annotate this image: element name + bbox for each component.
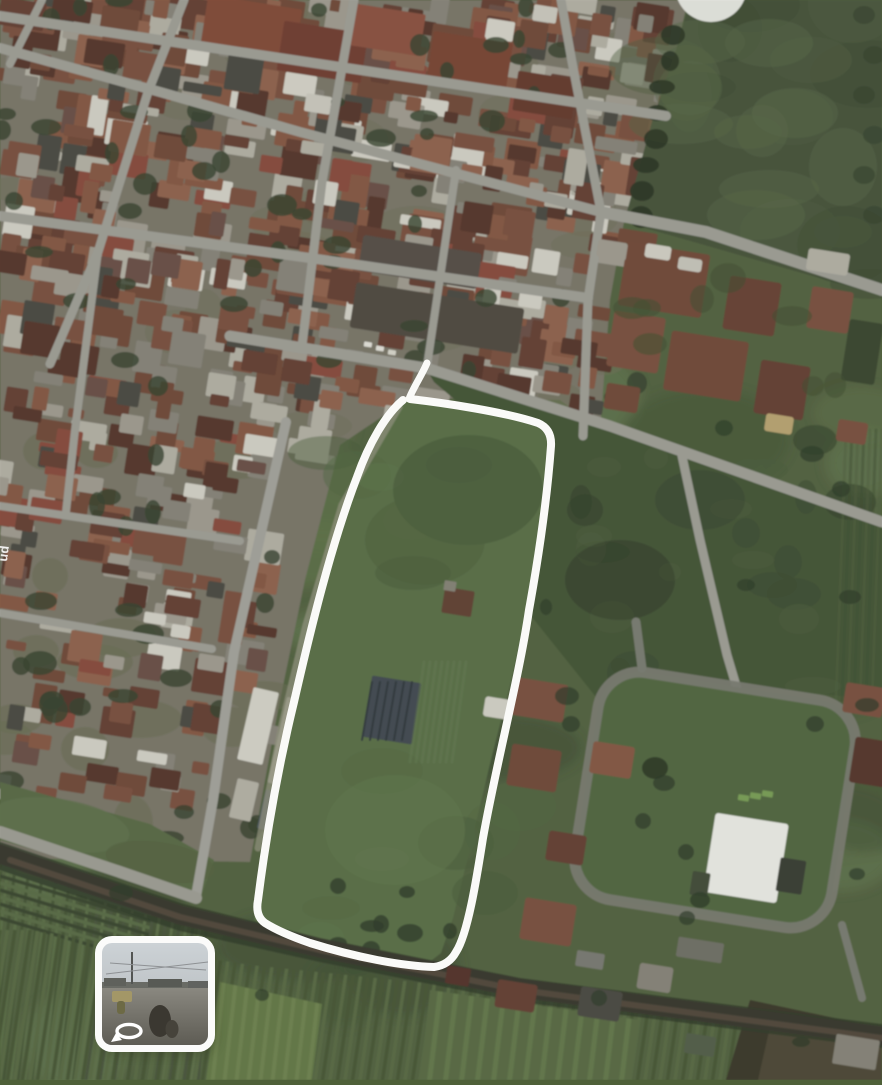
svg-text:ud: ud [0, 545, 12, 563]
